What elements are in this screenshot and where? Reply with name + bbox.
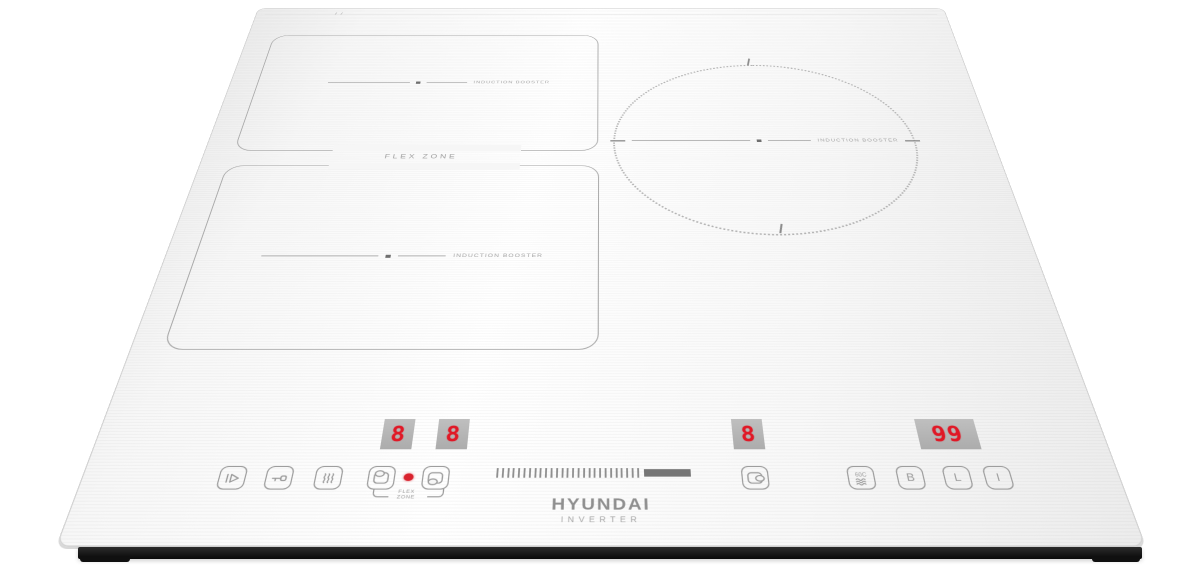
circle-tick-west [610, 140, 625, 141]
flex-upper-power-display: 8 [380, 419, 416, 449]
zone-center-line [632, 140, 751, 141]
base-foot-left [80, 556, 130, 562]
right-zone-dotted-circle [612, 65, 944, 236]
zone-center-square-icon [757, 139, 762, 141]
cooktop-base [78, 547, 1142, 559]
flex-lower-power-display: 8 [435, 419, 469, 449]
zone-center-line [398, 256, 446, 257]
flex-led-label-line2: ZONE [383, 494, 429, 500]
brand-logo: HYUNDAI [474, 495, 727, 514]
flex-lower-zone-button[interactable] [421, 466, 451, 490]
lower-zone-center-mark: INDUCTION BOOSTER [261, 253, 544, 258]
zone-center-line [427, 82, 468, 83]
zone-center-square-icon [386, 254, 392, 257]
pause-button[interactable] [215, 466, 248, 490]
flex-zone-label: FLEX ZONE [345, 153, 498, 159]
base-foot-right [1092, 556, 1140, 562]
upper-zone-center-mark: INDUCTION BOOSTER [327, 81, 550, 85]
keep-warm-button[interactable] [312, 466, 344, 490]
keep-warm-60c-icon: 60C [850, 469, 873, 486]
timer-display: 99 [914, 419, 982, 449]
flex-led-label: FLEX ZONE [383, 489, 429, 500]
boost-button[interactable]: B [895, 466, 927, 490]
power-button[interactable]: I [981, 466, 1015, 490]
power-slider[interactable] [496, 468, 691, 479]
slider-tick-marks [496, 468, 642, 478]
lock-button[interactable]: L [941, 466, 974, 490]
zone-center-line [768, 140, 811, 141]
flex-zone-upper-outline [234, 35, 599, 151]
induction-booster-label: INDUCTION BOOSTER [817, 138, 899, 142]
cooktop-glass: FLEX ZONE INDUCTION BOOSTER INDUCTION BO… [56, 8, 1147, 547]
pause-play-icon [221, 470, 244, 486]
slider-bar [644, 469, 691, 476]
key-icon [268, 470, 290, 486]
right-zone-power-display: 8 [731, 419, 765, 449]
right-zone-button[interactable] [740, 466, 770, 490]
induction-booster-label: INDUCTION BOOSTER [453, 253, 543, 258]
brand-tagline: INVERTER [473, 516, 728, 524]
power-label: I [995, 472, 1002, 484]
pot-top-zone-icon [370, 469, 392, 486]
pot-bottom-zone-icon [425, 469, 447, 486]
zone-outline-gap [332, 145, 521, 151]
zone-outline-gap [328, 163, 520, 169]
flex-zone-led [403, 473, 414, 481]
keep-warm-60c-label: 60C [854, 471, 867, 478]
steam-waves-icon [317, 470, 339, 486]
flex-bracket-right [427, 489, 444, 498]
pot-right-zone-icon [744, 469, 766, 486]
induction-hob-photo: FLEX ZONE INDUCTION BOOSTER INDUCTION BO… [0, 0, 1200, 572]
keep-warm-60c-button[interactable]: 60C [846, 466, 878, 490]
induction-booster-label: INDUCTION BOOSTER [473, 81, 550, 85]
right-zone-center-mark: INDUCTION BOOSTER [610, 138, 920, 142]
boost-label: B [905, 472, 916, 484]
zone-center-line [328, 82, 410, 83]
circle-tick-east [905, 140, 920, 141]
child-lock-button[interactable] [263, 466, 296, 490]
zone-center-line [261, 256, 379, 257]
zone-center-square-icon [416, 81, 421, 83]
flex-upper-zone-button[interactable] [366, 466, 397, 490]
lock-label: L [953, 472, 963, 484]
